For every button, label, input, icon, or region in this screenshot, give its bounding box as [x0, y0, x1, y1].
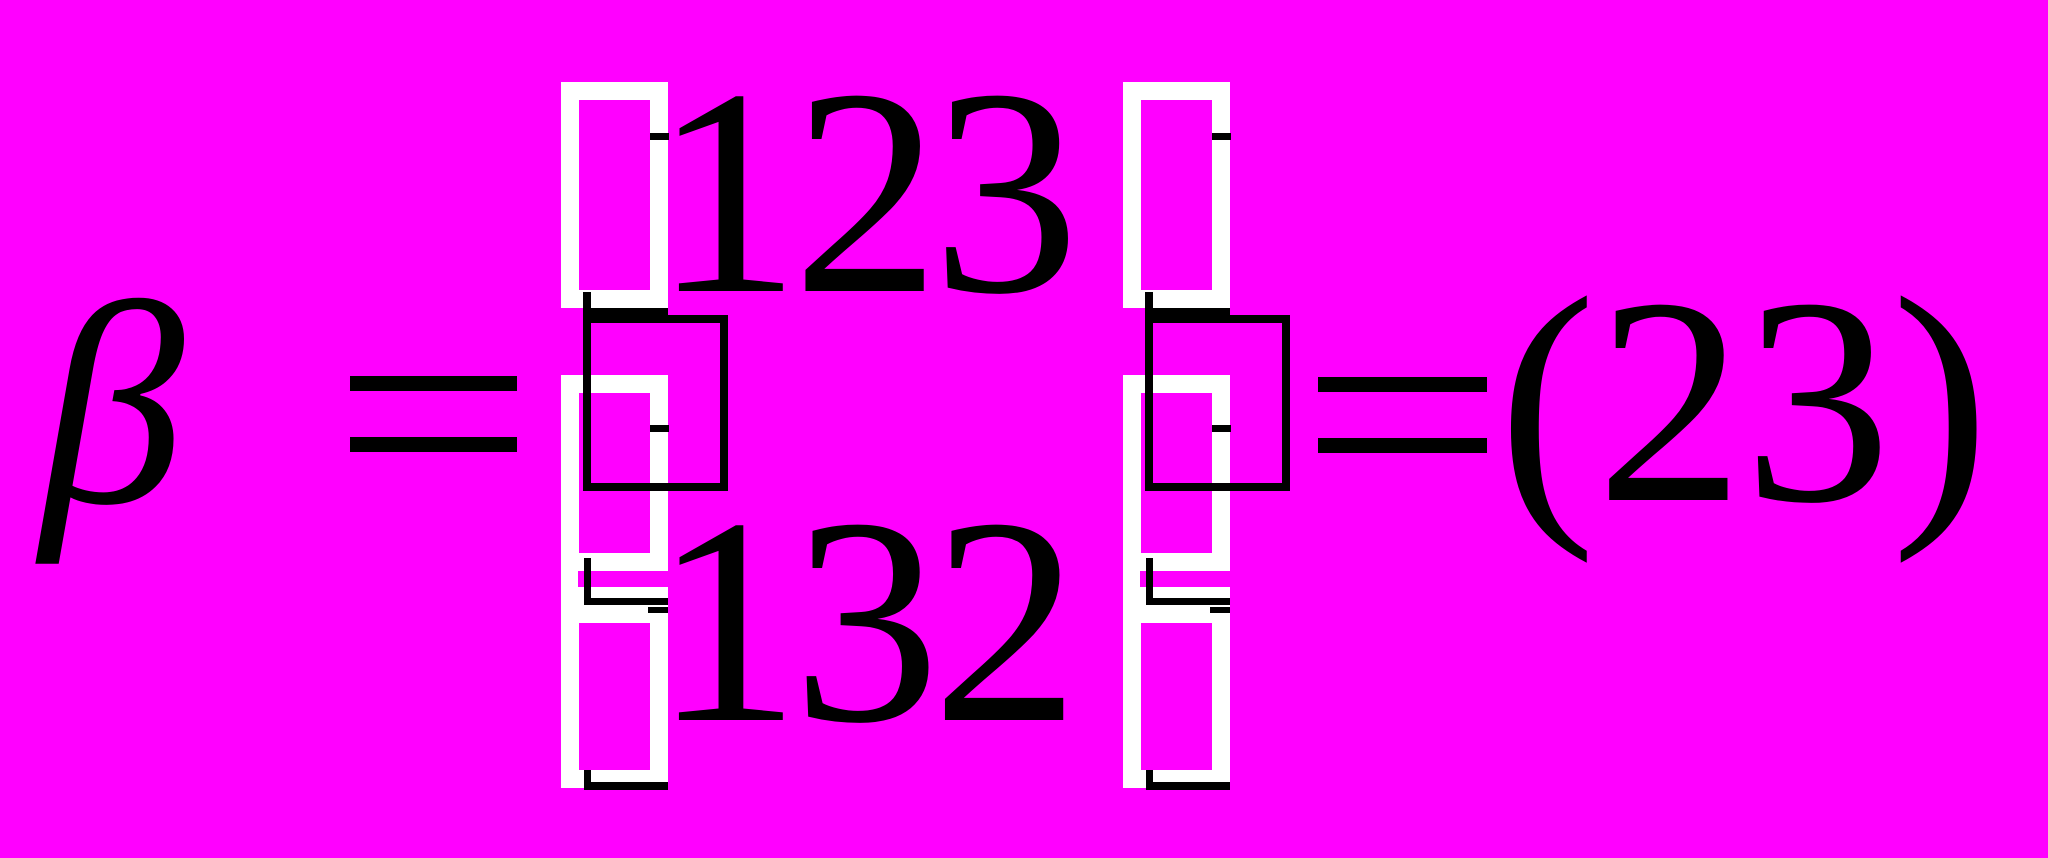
- black-corner-horizontal: [1149, 598, 1230, 605]
- permutation-bottom-row: 132: [653, 473, 1072, 768]
- equals-bottom-bar: [1318, 438, 1487, 453]
- white-notdef-box-bottom: [561, 605, 668, 788]
- equals-sign-first: [350, 376, 517, 452]
- black-tick: [650, 425, 669, 432]
- white-filler-bar: [1123, 560, 1140, 610]
- equals-sign-second: [1318, 377, 1487, 453]
- black-corner-horizontal: [1146, 782, 1230, 790]
- black-tick: [1210, 607, 1230, 613]
- black-tick: [1212, 133, 1231, 140]
- black-tick: [1212, 425, 1231, 432]
- white-notdef-box-top: [561, 82, 668, 308]
- white-notdef-box-bottom: [1123, 605, 1230, 788]
- white-filler-bar: [561, 560, 578, 610]
- equals-bottom-bar: [350, 437, 517, 452]
- beta-symbol: β: [40, 260, 184, 550]
- black-outline-square: [1145, 315, 1290, 491]
- equals-top-bar: [350, 376, 517, 391]
- cycle-notation-result: (23): [1498, 253, 1989, 548]
- right-bracket-missing-glyph-boxes: [1123, 82, 1290, 790]
- equation-image: β 123 132 (23): [0, 0, 2048, 858]
- equals-top-bar: [1318, 377, 1487, 392]
- white-notdef-box-top: [1123, 82, 1230, 308]
- permutation-top-row: 123: [653, 44, 1072, 339]
